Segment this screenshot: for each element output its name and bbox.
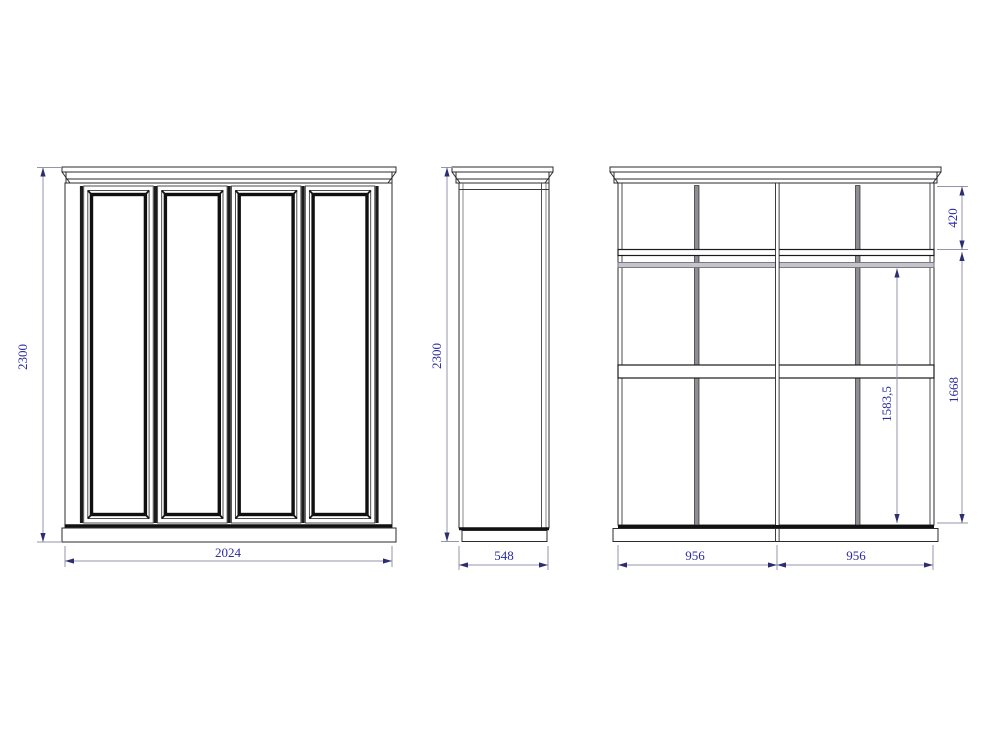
side-view: [452, 167, 553, 542]
dim-front-width-label: 2024: [215, 545, 242, 560]
side-plinth: [462, 531, 547, 542]
dimension-interior-bay-right: 956: [777, 545, 933, 570]
door-panel-4: [305, 186, 374, 523]
dimension-side-height: 2300: [429, 168, 459, 542]
dimension-side-depth: 548: [459, 546, 548, 570]
side-panel-outline: [459, 183, 549, 528]
front-crown-molding: [62, 167, 396, 183]
technical-drawing: 2300 2024 2300 548: [0, 0, 1000, 750]
door-panel-1: [84, 186, 154, 523]
front-view: [62, 167, 396, 542]
dim-side-depth-label: 548: [494, 548, 514, 563]
dim-front-height-label: 2300: [15, 344, 30, 370]
interior-center-partition: [776, 183, 780, 542]
dimension-interior-bay-left: 956: [618, 545, 777, 570]
interior-divider-right: [856, 186, 861, 526]
door-panel-3: [231, 186, 301, 523]
dimension-interior-rail-height: 1583,5: [879, 269, 900, 524]
interior-view: [610, 167, 941, 542]
door-panel-2: [158, 186, 228, 523]
drawing-canvas: 2300 2024 2300 548: [0, 0, 1000, 750]
interior-crown-molding: [610, 167, 941, 183]
dim-interior-bay-right-label: 956: [846, 548, 866, 563]
dim-side-height-label: 2300: [429, 343, 444, 369]
dim-interior-rail-label: 1583,5: [879, 386, 894, 422]
dimension-interior-top-section: 420: [937, 187, 968, 250]
dim-interior-bay-left-label: 956: [685, 548, 705, 563]
dimension-interior-inner-height: 1668: [937, 252, 968, 523]
front-plinth: [62, 528, 396, 542]
dim-interior-top-label: 420: [945, 208, 960, 228]
side-crown-molding: [452, 167, 553, 183]
dimension-front-width: 2024: [65, 545, 392, 567]
interior-divider-left: [695, 186, 700, 526]
dim-interior-inner-height-label: 1668: [946, 377, 961, 403]
dimension-front-height: 2300: [15, 168, 61, 543]
